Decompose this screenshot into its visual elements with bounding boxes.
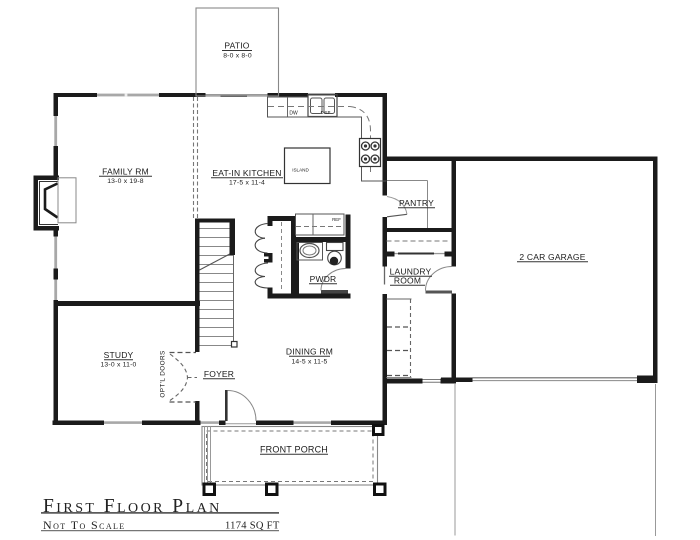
- svg-text:13-0 x 19-8: 13-0 x 19-8: [107, 178, 144, 185]
- svg-text:FOYER: FOYER: [204, 369, 234, 379]
- svg-text:8-0 x 8-0: 8-0 x 8-0: [223, 53, 252, 60]
- svg-text:STUDY: STUDY: [104, 350, 134, 360]
- svg-text:DW: DW: [289, 111, 298, 117]
- svg-text:13-0 x 11-0: 13-0 x 11-0: [100, 362, 136, 369]
- svg-text:Not To Scale: Not To Scale: [43, 518, 126, 532]
- svg-text:EAT-IN KITCHEN: EAT-IN KITCHEN: [212, 168, 281, 178]
- svg-text:DISP: DISP: [321, 110, 331, 115]
- svg-text:FAMILY RM: FAMILY RM: [102, 167, 149, 177]
- svg-text:17-5 x 11-4: 17-5 x 11-4: [229, 180, 265, 187]
- svg-text:PWDR: PWDR: [310, 274, 337, 284]
- svg-text:FRONT PORCH: FRONT PORCH: [260, 445, 328, 455]
- svg-text:First Floor Plan: First Floor Plan: [43, 496, 222, 517]
- svg-text:PANTRY: PANTRY: [399, 198, 434, 208]
- svg-text:1174 SQ FT: 1174 SQ FT: [225, 521, 280, 532]
- svg-text:ROOM: ROOM: [394, 276, 421, 286]
- svg-text:PATIO: PATIO: [224, 41, 249, 51]
- svg-text:2 CAR GARAGE: 2 CAR GARAGE: [519, 252, 585, 262]
- svg-text:14-5 x 11-5: 14-5 x 11-5: [291, 359, 327, 366]
- svg-text:DINING RM: DINING RM: [286, 347, 333, 357]
- svg-text:OPT'L DOORS: OPT'L DOORS: [160, 350, 167, 397]
- svg-text:ISLAND: ISLAND: [292, 168, 309, 173]
- svg-text:REF: REF: [332, 217, 341, 222]
